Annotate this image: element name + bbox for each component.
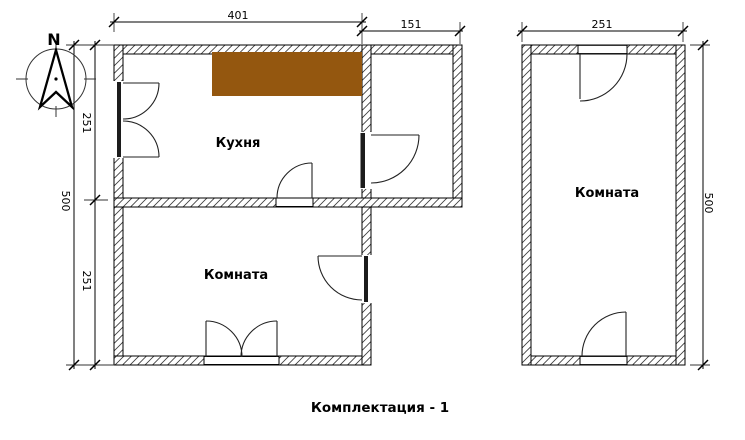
kitchen-to-room-door [276,163,313,207]
dim-height: 500 [702,193,715,214]
door-sill [580,356,627,364]
door-frame [364,256,368,302]
door-sill [276,198,313,207]
door-swing-arc [241,321,277,357]
door-swing-arc [371,135,419,183]
wall-left [522,45,531,365]
entrance-double-door-left [113,81,159,158]
room-double-door-bottom [204,321,279,365]
dim-width: 251 [592,18,613,31]
room-label-left: Комната [204,268,268,283]
floor-plan-canvas: Кухня Комната Комната 401 [0,0,745,440]
door-frame [117,82,121,157]
dim-height-lower: 251 [80,271,93,292]
door-swing-arc [582,312,626,356]
room-door-bottom [580,312,627,365]
kitchen-label: Кухня [216,136,261,151]
door-swing-arc [318,256,362,300]
kitchen-counter [212,52,362,96]
room-label-right: Комната [575,186,639,201]
dim-height-upper: 251 [80,113,93,134]
door-sill [204,357,279,365]
door-swing-arc [123,83,159,119]
door-frame [361,133,366,188]
door-swing-arc [277,163,312,198]
door-swing-arc [123,121,159,157]
room-door-top [578,45,627,101]
floor-plan-drawing: Кухня Комната Комната 401 [0,0,745,440]
dim-width-annex: 151 [401,18,422,31]
dim-width-main: 401 [228,9,249,22]
room-side-door [318,255,372,303]
compass-center-dot [54,77,57,80]
wall-right [676,45,685,365]
wall-annex-right [453,45,462,207]
left-unit: Кухня Комната [113,45,462,365]
dim-height-total: 500 [59,191,72,212]
right-unit: Комната [522,45,685,365]
north-compass-icon: N [16,30,96,117]
plan-caption: Комплектация - 1 [311,400,449,416]
door-swing-arc [206,321,242,357]
door-swing-arc [580,54,627,101]
north-label: N [47,30,60,49]
door-sill [578,45,627,53]
kitchen-to-annex-door [361,132,420,189]
